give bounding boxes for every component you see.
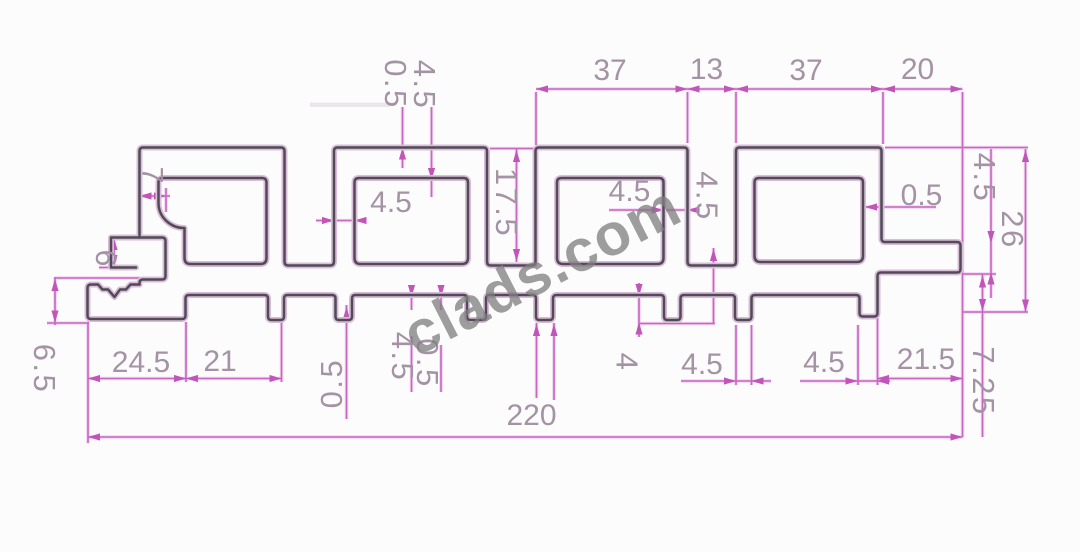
svg-text:21.5: 21.5 xyxy=(897,343,955,376)
svg-text:20: 20 xyxy=(901,53,934,86)
svg-text:4: 4 xyxy=(609,353,644,373)
svg-text:4.5: 4.5 xyxy=(407,60,442,111)
svg-text:37: 37 xyxy=(593,54,626,87)
svg-text:220: 220 xyxy=(506,399,556,432)
svg-text:0.5: 0.5 xyxy=(314,358,349,409)
svg-text:24.5: 24.5 xyxy=(112,346,170,379)
svg-text:4.5: 4.5 xyxy=(967,153,1002,204)
svg-text:4.5: 4.5 xyxy=(370,186,412,219)
svg-text:26: 26 xyxy=(995,210,1030,249)
svg-text:4.5: 4.5 xyxy=(681,348,723,381)
svg-text:0.5: 0.5 xyxy=(901,179,943,212)
svg-text:4.5: 4.5 xyxy=(803,346,845,379)
svg-text:6: 6 xyxy=(89,250,122,267)
svg-text:4.5: 4.5 xyxy=(689,171,724,222)
svg-text:7.25: 7.25 xyxy=(966,346,1001,416)
svg-text:17.5: 17.5 xyxy=(489,168,524,238)
svg-text:37: 37 xyxy=(789,54,822,87)
svg-text:13: 13 xyxy=(690,53,723,86)
svg-text:6.5: 6.5 xyxy=(27,344,62,395)
svg-text:7: 7 xyxy=(136,167,169,184)
svg-text:21: 21 xyxy=(203,345,236,378)
